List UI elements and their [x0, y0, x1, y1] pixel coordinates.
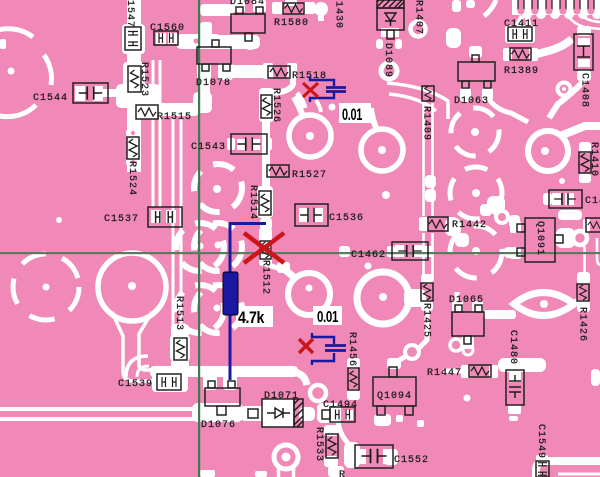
svg-text:R1389: R1389 — [504, 66, 539, 77]
svg-text:R1410: R1410 — [588, 142, 599, 177]
svg-text:R1407: R1407 — [413, 0, 424, 35]
svg-text:R1526: R1526 — [270, 88, 281, 123]
svg-text:0.01: 0.01 — [342, 105, 362, 124]
svg-text:C1408: C1408 — [579, 73, 590, 108]
svg-text:R1527: R1527 — [292, 170, 327, 181]
svg-text:1547: 1547 — [124, 0, 135, 28]
svg-text:C1411: C1411 — [504, 19, 539, 30]
svg-text:Q1091: Q1091 — [534, 221, 545, 256]
svg-text:C1462: C1462 — [351, 250, 386, 261]
svg-text:D1089: D1089 — [382, 43, 393, 78]
svg-text:D1065: D1065 — [449, 295, 484, 306]
svg-text:R1512: R1512 — [260, 260, 271, 295]
svg-text:D1076: D1076 — [201, 420, 236, 431]
svg-text:C1549: C1549 — [535, 424, 546, 459]
svg-text:C14: C14 — [585, 196, 600, 207]
svg-text:C1494: C1494 — [323, 400, 358, 411]
svg-text:C1544: C1544 — [33, 93, 68, 104]
svg-text:Q1094: Q1094 — [377, 391, 412, 402]
svg-text:C1536: C1536 — [329, 213, 364, 224]
svg-text:R1533: R1533 — [313, 427, 324, 462]
svg-text:C1560: C1560 — [150, 23, 185, 34]
svg-text:R1447: R1447 — [427, 368, 462, 379]
svg-text:C1480: C1480 — [507, 330, 518, 365]
svg-text:R1409: R1409 — [421, 106, 432, 141]
svg-text:C1552: C1552 — [394, 455, 429, 466]
svg-text:R1426: R1426 — [577, 307, 588, 342]
svg-text:D1063: D1063 — [454, 96, 489, 107]
svg-text:R1514: R1514 — [247, 185, 258, 220]
svg-text:R1524: R1524 — [126, 161, 137, 196]
svg-text:R1513: R1513 — [173, 296, 184, 331]
svg-text:0.01: 0.01 — [317, 309, 338, 326]
svg-text:R1523: R1523 — [138, 62, 149, 97]
svg-text:R1425: R1425 — [421, 303, 432, 338]
svg-text:C1543: C1543 — [191, 142, 226, 153]
svg-text:D1071: D1071 — [264, 391, 299, 402]
svg-text:4.7k: 4.7k — [238, 308, 265, 327]
svg-text:D1084: D1084 — [230, 0, 265, 8]
svg-text:1430: 1430 — [333, 1, 344, 29]
svg-text:D1078: D1078 — [196, 78, 231, 89]
svg-text:R: R — [339, 470, 346, 477]
svg-text:R1515: R1515 — [157, 112, 192, 123]
svg-text:C1539: C1539 — [118, 379, 153, 390]
svg-text:R1442: R1442 — [452, 220, 487, 231]
svg-text:R1456: R1456 — [346, 332, 357, 367]
svg-text:R1580: R1580 — [274, 18, 309, 29]
svg-text:C1537: C1537 — [104, 214, 139, 225]
